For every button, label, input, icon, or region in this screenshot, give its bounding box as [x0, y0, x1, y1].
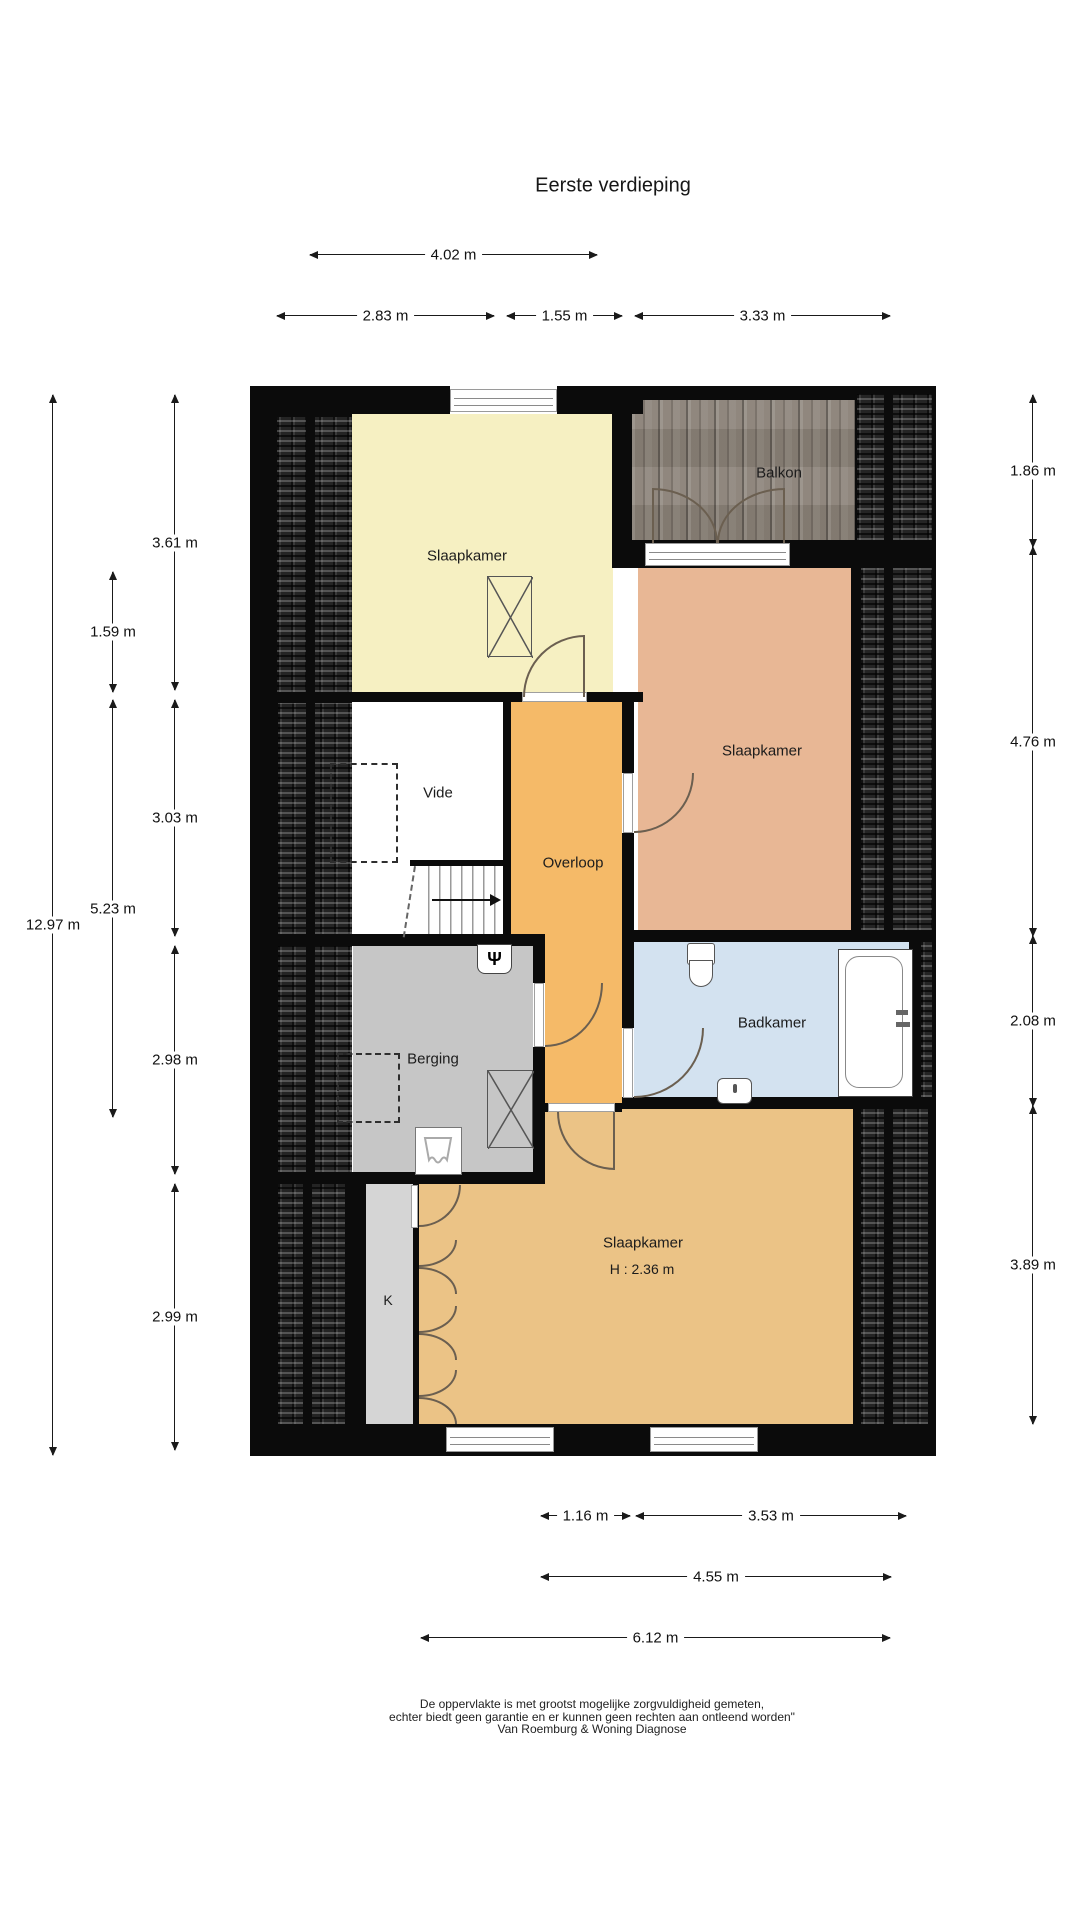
window-top [450, 389, 557, 412]
roof-seam [306, 946, 315, 1172]
wall-bedroom-right-outer [851, 540, 861, 930]
bathtub-tap-icon [896, 1010, 908, 1015]
wall-bottom [250, 1424, 936, 1456]
roof-tiles-right-2 [861, 568, 932, 930]
room-label-bedroom-right: Slaapkamer [722, 743, 802, 760]
wardrobe-symbol [487, 576, 532, 657]
dim-left-303: 3.03 m [174, 700, 175, 936]
wall-top-left [250, 386, 450, 414]
room-label-berging: Berging [407, 1051, 459, 1068]
dim-label: 4.76 m [1004, 733, 1062, 750]
room-label-bedroom-top: Slaapkamer [427, 548, 507, 565]
bathtub-inner [845, 956, 903, 1088]
window-bottom-right [650, 1427, 758, 1452]
room-label-bedroom-bottom: Slaapkamer [603, 1235, 683, 1252]
dim-top-283: 2.83 m [277, 315, 494, 316]
dim-left-299: 2.99 m [174, 1184, 175, 1450]
dim-label: 1.16 m [557, 1508, 615, 1525]
window-glass [649, 552, 786, 560]
wall-bedroom-balcony-divider [612, 386, 632, 568]
room-label-overloop: Overloop [543, 855, 604, 872]
disclaimer-line-3: Van Roemburg & Woning Diagnose [242, 1723, 942, 1736]
ventilation-symbol: Ψ [477, 944, 512, 974]
doorway-bedroom-bottom [548, 1103, 615, 1112]
dim-right-186: 1.86 m [1032, 395, 1033, 547]
room-label-vide: Vide [423, 785, 453, 802]
dim-bottom-455: 4.55 m [541, 1576, 891, 1577]
disclaimer: De oppervlakte is met grootst mogelijke … [242, 1698, 942, 1736]
dim-left-159: 1.59 m [112, 572, 113, 692]
dim-top-402: 4.02 m [310, 254, 597, 255]
dim-label: 4.02 m [425, 247, 483, 264]
dim-label: 3.53 m [742, 1508, 800, 1525]
dim-label: 3.89 m [1004, 1257, 1062, 1274]
dim-label: 12.97 m [20, 917, 86, 934]
dim-top-155: 1.55 m [507, 315, 622, 316]
roof-tiles-right-4 [861, 1109, 928, 1424]
wardrobe-symbol [487, 1070, 533, 1148]
wall-bedroom-top-bottom-a [278, 692, 522, 702]
dim-label: 3.61 m [146, 534, 204, 551]
room-overloop-upper [511, 702, 622, 938]
dim-left-361: 3.61 m [174, 395, 175, 690]
door-leaf [783, 488, 785, 543]
doorway-badkamer [623, 1028, 633, 1098]
dim-right-476: 4.76 m [1032, 547, 1033, 936]
dim-left-523: 5.23 m [112, 700, 113, 1117]
room-label-balcony: Balkon [756, 465, 802, 482]
wall-badkamer-top [622, 930, 936, 942]
door-leaf [583, 635, 585, 697]
dim-bottom-612: 6.12 m [421, 1637, 890, 1638]
disclaimer-line-1: De oppervlakte is met grootst mogelijke … [242, 1698, 942, 1711]
floor-plan-page: Eerste verdieping [0, 0, 1080, 1920]
roof-seam [306, 703, 315, 934]
window-bottom-left [446, 1427, 554, 1452]
dim-right-389: 3.89 m [1032, 1106, 1033, 1424]
room-label-closet: K [383, 1292, 392, 1308]
roof-seam [306, 417, 315, 692]
dim-label: 3.03 m [146, 810, 204, 827]
berging-skylight-dashed [337, 1053, 400, 1123]
window-glass [654, 1437, 754, 1445]
wall-bedroom-bottom-right [853, 1109, 861, 1424]
stairs-arrow-head-icon [490, 894, 501, 906]
dim-left-1297: 12.97 m [52, 395, 53, 1455]
roof-seam [303, 1184, 312, 1424]
dim-bottom-353: 3.53 m [636, 1515, 906, 1516]
dim-label: 2.08 m [1004, 1013, 1062, 1030]
dim-label: 1.55 m [536, 308, 594, 325]
stairs-direction-arrow [432, 899, 490, 901]
washing-machine-icon [416, 1128, 460, 1173]
wall-berging-bottom [250, 1172, 545, 1184]
door-leaf [613, 1112, 615, 1170]
door-leaf [652, 488, 654, 543]
wall-closet-left [345, 1184, 366, 1424]
dim-label: 6.12 m [627, 1630, 685, 1647]
doorway-bedroom-right [623, 773, 633, 833]
doorway-closet [411, 1185, 418, 1228]
wardrobe-x-icon [488, 1071, 534, 1149]
room-label-badkamer: Badkamer [738, 1015, 806, 1032]
sink-faucet-icon [733, 1084, 737, 1093]
room-label-bedroom-bottom-height: H : 2.36 m [610, 1261, 675, 1277]
roof-tiles-right-1 [857, 394, 932, 540]
wall-balcony-top [643, 386, 857, 400]
window-glass [454, 398, 553, 406]
doorway-berging [534, 983, 544, 1047]
window-balcony [645, 543, 790, 566]
dim-left-298: 2.98 m [174, 946, 175, 1174]
roof-seam [884, 1109, 893, 1424]
dim-right-208: 2.08 m [1032, 936, 1033, 1106]
dim-label: 4.55 m [687, 1569, 745, 1586]
bathtub-tap-icon [896, 1022, 910, 1027]
roof-seam [884, 568, 893, 930]
dim-label: 1.86 m [1004, 463, 1062, 480]
dim-label: 5.23 m [84, 900, 142, 917]
dim-label: 2.99 m [146, 1309, 204, 1326]
dim-bottom-116: 1.16 m [541, 1515, 630, 1516]
wall-berging-right-b [533, 1047, 545, 1184]
dim-label: 3.33 m [734, 308, 792, 325]
dim-label: 2.98 m [146, 1052, 204, 1069]
dim-label: 2.83 m [357, 308, 415, 325]
wall-vide-overloop [503, 697, 511, 938]
wall-badkamer-bottom [622, 1097, 913, 1109]
toilet-bowl [689, 960, 713, 987]
wall-overloop-right-a [622, 697, 634, 773]
roof-tiles-right-3 [921, 942, 932, 1097]
window-glass [450, 1437, 550, 1445]
wardrobe-x-icon [488, 577, 533, 658]
dim-label: 1.59 m [84, 624, 142, 641]
roof-seam [884, 394, 893, 540]
wall-bedroom-top-bottom-b [587, 692, 643, 702]
washing-machine-symbol [415, 1127, 462, 1175]
vide-skylight-dashed [330, 763, 398, 863]
ventilation-icon: Ψ [487, 949, 502, 970]
dim-top-333: 3.33 m [635, 315, 890, 316]
wall-berging-right-a [533, 934, 545, 983]
page-title: Eerste verdieping [535, 175, 691, 198]
